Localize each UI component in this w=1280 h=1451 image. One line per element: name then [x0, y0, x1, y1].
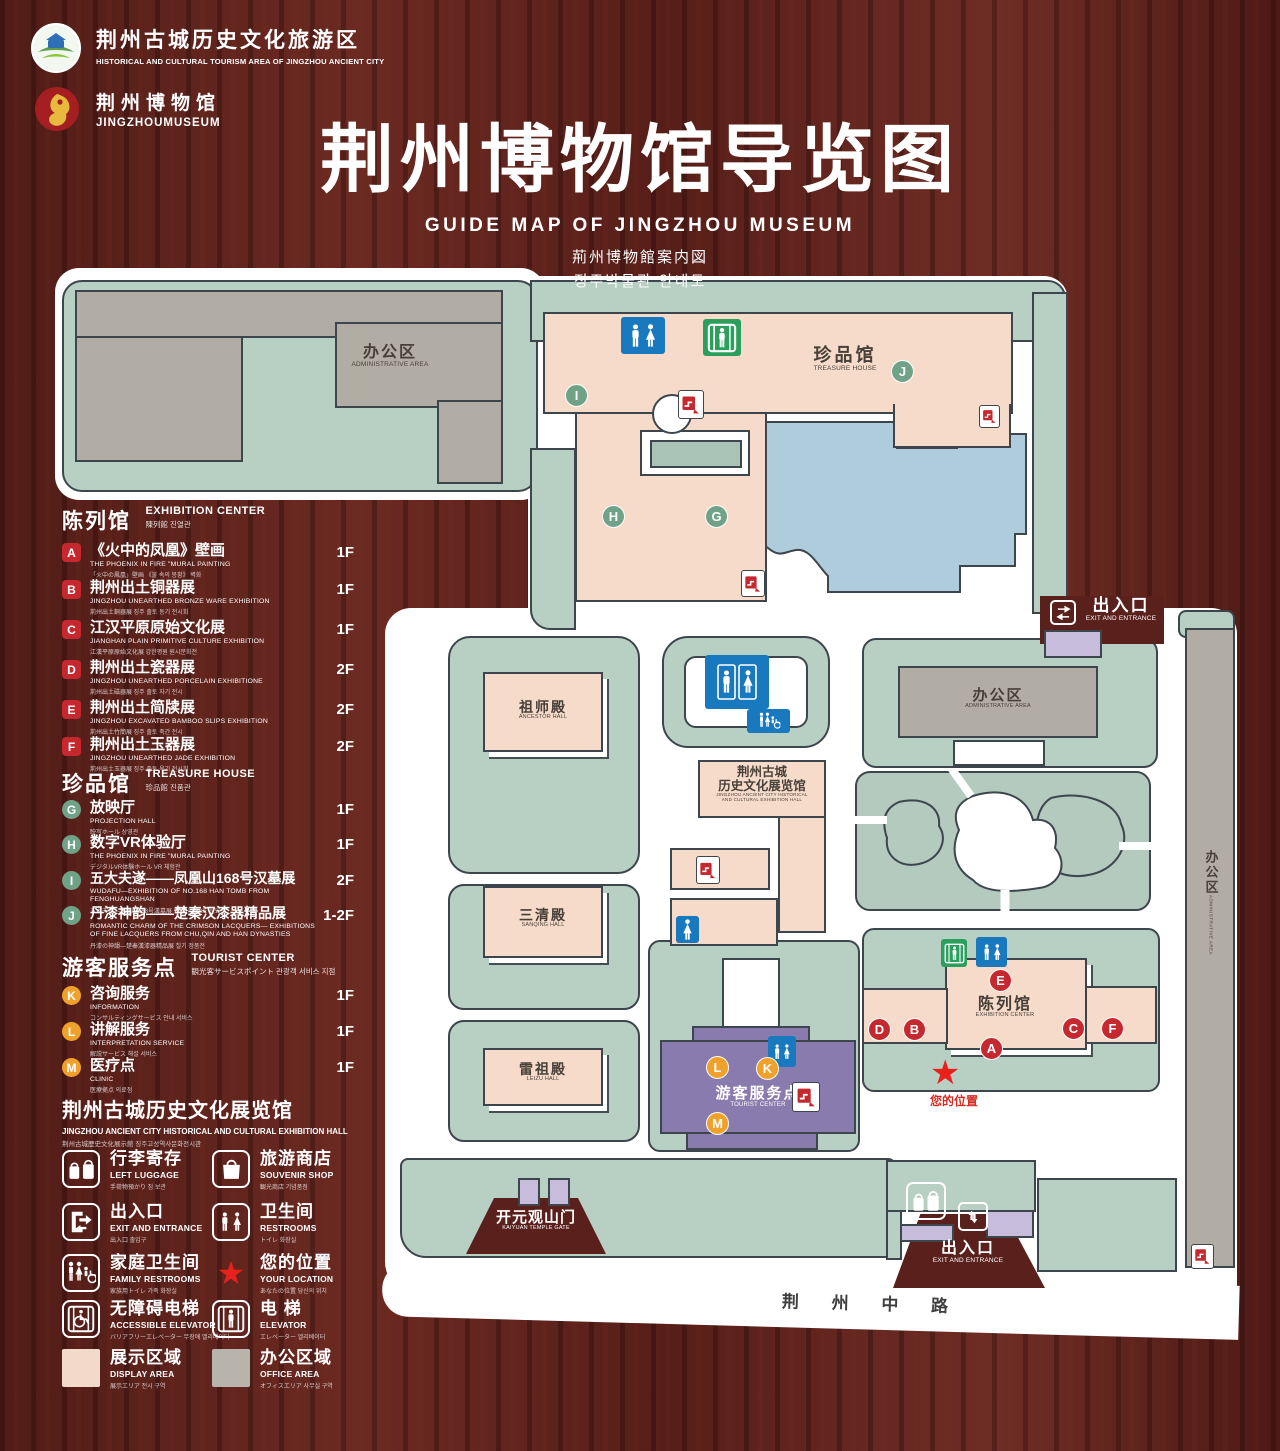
- tourism-area-logo: [30, 22, 82, 74]
- legend-item-D: D 荆州出土瓷器展 JINGZHOU UNEARTHED PORCELAIN E…: [62, 660, 354, 696]
- restroom-icon: [980, 941, 1004, 964]
- restrooms-icon: [212, 1203, 250, 1241]
- item-floor: 1F: [336, 544, 354, 561]
- sanqing-label-en: SANQING HALL: [483, 923, 603, 929]
- exit-icon-topright: [1050, 600, 1076, 625]
- icon-sub: トイレ 화장실: [260, 1235, 317, 1244]
- woman-restroom-icon: [681, 919, 694, 941]
- marker-B: B: [903, 1018, 926, 1041]
- legend-souvenir-shop: 旅游商店 SOUVENIR SHOP 観光商店 기념품점: [212, 1150, 333, 1191]
- icon-sub: 手荷物預かり 짐 보관: [110, 1182, 182, 1191]
- item-zh: 荆州出土瓷器展: [90, 660, 320, 676]
- item-zh: 数字VR体验厅: [90, 835, 320, 851]
- elevator-sign-treasure: [703, 319, 741, 356]
- legend-section-exhibition-title: 陈列馆 EXHIBITION CENTER 陳列館 진열관: [62, 505, 265, 535]
- marker-E: E: [989, 969, 1012, 992]
- badge-A: A: [62, 543, 81, 562]
- your-location-star-icon: ★: [212, 1254, 250, 1292]
- item-sub: 荊州出土銅器展 징주 출토 동기 전시회: [90, 607, 320, 616]
- admin-topleft-label: 办公区 ADMINISTRATIVE AREA: [330, 344, 450, 368]
- legend-elevator: 电 梯 ELEVATOR エレベーター 엘리베이터: [212, 1300, 325, 1341]
- south-grounds-east: [1037, 1178, 1177, 1272]
- elevator-icon: [707, 323, 737, 353]
- family-restroom-sign-central: [747, 709, 790, 733]
- admin-mid-label: 办公区 ADMINISTRATIVE AREA: [938, 688, 1058, 710]
- icon-sub: 展示エリア 전시 구역: [110, 1381, 182, 1390]
- treasure-grounds-right: [1032, 292, 1068, 614]
- legend-hall-note: 荆州古城历史文化展览馆 JINGZHOU ANCIENT CITY HISTOR…: [62, 1094, 372, 1148]
- item-zh: 咨询服务: [90, 986, 320, 1002]
- treasure-label-en: TREASURE HOUSE: [785, 365, 905, 372]
- item-floor: 1F: [336, 801, 354, 818]
- marker-I: I: [565, 384, 588, 407]
- hall-note-zh: 荆州古城历史文化展览馆: [62, 1094, 372, 1123]
- section-title-zh: 游客服务点: [62, 952, 177, 982]
- updown-arrows-glyph: [963, 1207, 983, 1227]
- elevator-sign-exhibition: [941, 939, 967, 967]
- restroom-sign-exhibhall: [676, 916, 699, 943]
- item-floor: 1F: [336, 1023, 354, 1040]
- exhibition-label-zh: 陈列馆: [950, 996, 1060, 1013]
- escalator-glyph: [982, 408, 997, 425]
- your-location-star-icon: ★: [930, 1056, 960, 1090]
- treasure-grounds-left: [530, 448, 576, 630]
- gate-block-south-2: [986, 1210, 1034, 1238]
- treasure-courtyard-garden: [650, 440, 742, 468]
- south-exit-arrows-icon: [958, 1202, 988, 1231]
- legend-section-treasure-title: 珍品馆 TREASURE HOUSE 珍品館 진품관: [62, 768, 255, 798]
- icon-zh: 出入口: [110, 1203, 202, 1220]
- office-area-swatch: [212, 1349, 250, 1387]
- title-zh: 荆州博物馆导览图: [240, 100, 1040, 207]
- badge-F: F: [62, 737, 81, 756]
- legend-item-L: L 讲解服务 INTERPRETATION SERVICE 解説サービス 해설 …: [62, 1022, 354, 1058]
- icon-zh: 电 梯: [260, 1300, 325, 1317]
- leizu-hall-label: 雷祖殿 LEIZU HALL: [483, 1062, 603, 1083]
- icon-en: ELEVATOR: [260, 1320, 325, 1330]
- badge-J: J: [62, 906, 81, 925]
- item-floor: 2F: [336, 872, 354, 889]
- admin-topleft-label-zh: 办公区: [330, 344, 450, 361]
- legend-item-A: A 《火中的凤凰》壁画 THE PHOENIX IN FIRE "MURAL P…: [62, 543, 354, 579]
- exit-arrows-glyph: [1054, 605, 1073, 620]
- badge-M: M: [62, 1058, 81, 1077]
- icon-en: YOUR LOCATION: [260, 1274, 333, 1284]
- icon-en: EXIT AND ENTRANCE: [110, 1223, 202, 1233]
- item-floor: 1F: [336, 987, 354, 1004]
- marker-H: H: [602, 505, 625, 528]
- badge-D: D: [62, 660, 81, 679]
- badge-K: K: [62, 986, 81, 1005]
- admin-strip-label-en: ADMINISTRATIVE AREA: [1209, 895, 1214, 955]
- escalator-icon-treasure-2: [741, 570, 765, 597]
- item-en: PROJECTION HALL: [90, 818, 320, 826]
- escalator-icon-treasure-1: [678, 390, 704, 419]
- legend-item-G: G 放映厅 PROJECTION HALL 映写ホール 상영관 1F: [62, 800, 354, 836]
- section-title-sub: 珍品館 진품관: [145, 782, 255, 793]
- icon-en: DISPLAY AREA: [110, 1369, 182, 1379]
- item-en: JINGZHOU UNEARTHED BRONZE WARE EXHIBITIO…: [90, 598, 320, 606]
- badge-L: L: [62, 1022, 81, 1041]
- badge-B: B: [62, 580, 81, 599]
- legend-office-area: 办公区域 OFFICE AREA オフィスエリア 사무실 구역: [212, 1349, 333, 1390]
- item-zh: 荆州出土玉器展: [90, 737, 320, 753]
- legend-item-E: E 荆州出土简牍展 JINGZHOU EXCAVATED BAMBOO SLIP…: [62, 700, 354, 736]
- icon-zh: 家庭卫生间: [110, 1254, 201, 1271]
- elevator-icon: [212, 1300, 250, 1338]
- item-zh: 放映厅: [90, 800, 320, 816]
- item-sub: 荊州出土磁器展 징주 출토 자기 전시: [90, 687, 320, 696]
- badge-E: E: [62, 700, 81, 719]
- museum-name-en: JINGZHOUMUSEUM: [96, 117, 221, 129]
- section-title-zh: 陈列馆: [62, 505, 131, 535]
- south-exit-label: 出入口 EXIT AND ENTRANCE: [900, 1240, 1036, 1264]
- museum-name-zh: 荆州博物馆: [96, 88, 221, 115]
- item-floor: 2F: [336, 661, 354, 678]
- garden: [855, 768, 1153, 914]
- item-en: JINGZHOU EXCAVATED BAMBOO SLIPS EXHIBITI…: [90, 718, 320, 726]
- item-zh: 讲解服务: [90, 1022, 320, 1038]
- item-en: THE PHOENIX IN FIRE "MURAL PAINTING: [90, 853, 320, 861]
- luggage-glyph: [68, 1158, 95, 1181]
- sanqing-hall-label: 三清殿 SANQING HALL: [483, 908, 603, 929]
- marker-A: A: [980, 1037, 1003, 1060]
- item-en: CLINIC: [90, 1076, 320, 1084]
- family-restroom-icon: [752, 712, 786, 730]
- leizu-label-en: LEIZU HALL: [483, 1077, 603, 1083]
- exhibition-label-en: EXHIBITION CENTER: [950, 1013, 1060, 1019]
- escalator-glyph: [796, 1086, 817, 1109]
- badge-H: H: [62, 835, 81, 854]
- legend-item-M: M 医疗点 CLINIC 医療拠点 의료점 1F: [62, 1058, 354, 1094]
- icon-en: RESTROOMS: [260, 1223, 317, 1233]
- marker-L: L: [706, 1056, 729, 1079]
- exhibhall-building-wing: [778, 818, 826, 933]
- restroom-icon: [714, 662, 760, 702]
- exit-entrance-icon: [62, 1203, 100, 1241]
- legend-item-K: K 咨询服务 INFORMATION コンサルティングサービス 안내 서비스 1…: [62, 986, 354, 1022]
- gate-label-zh: 开元观山门: [466, 1210, 606, 1226]
- south-exit-zh: 出入口: [900, 1240, 1036, 1257]
- legend-display-area: 展示区域 DISPLAY AREA 展示エリア 전시 구역: [62, 1349, 182, 1390]
- section-title-en: TREASURE HOUSE: [145, 768, 255, 780]
- marker-K: K: [756, 1057, 779, 1080]
- admin-mid-label-zh: 办公区: [938, 688, 1058, 704]
- item-floor: 2F: [336, 701, 354, 718]
- display-area-swatch: [62, 1349, 100, 1387]
- legend-family-restrooms: 家庭卫生间 FAMILY RESTROOMS 家族用トイレ 가족 화장실: [62, 1254, 201, 1295]
- gate-block-west-1: [518, 1178, 540, 1206]
- item-en: ROMANTIC CHARM OF THE CRIMSON LACQUERS— …: [90, 923, 320, 940]
- escalator-icon-tourist: [792, 1082, 820, 1112]
- admin-topleft-label-en: ADMINISTRATIVE AREA: [330, 361, 450, 368]
- restroom-sign-central: [705, 655, 769, 709]
- restroom-sign-exhibition: [976, 937, 1007, 967]
- tourism-area-name-zh: 荆州古城历史文化旅游区: [96, 24, 384, 54]
- accessible-elevator-glyph: [67, 1305, 95, 1333]
- escalator-icon-strip: [1191, 1244, 1214, 1269]
- marker-D: D: [868, 1018, 891, 1041]
- restroom-icon: [626, 321, 660, 351]
- gate-label-en: KAIYUAN TEMPLE GATE: [466, 1226, 606, 1232]
- ancestor-hall-label: 祖师殿 ANCESTOR HALL: [483, 700, 603, 721]
- item-zh: 五大夫遂——凤凰山168号汉墓展: [90, 871, 320, 886]
- admin-mid-label-en: ADMINISTRATIVE AREA: [938, 704, 1058, 710]
- exit-topright-zh: 出入口: [1078, 597, 1164, 615]
- exit-topright-en: EXIT AND ENTRANCE: [1078, 615, 1164, 622]
- ancestor-label-zh: 祖师殿: [483, 700, 603, 715]
- exhibhall-label-zh2: 历史文化展览馆: [690, 780, 834, 794]
- icon-sub: エレベーター 엘리베이터: [260, 1332, 325, 1341]
- road-name: 荆 州 中 路: [742, 1286, 1003, 1318]
- section-title-en: TOURIST CENTER: [191, 952, 335, 964]
- hall-note-en: JINGZHOU ANCIENT CITY HISTORICAL AND CUL…: [62, 1127, 372, 1136]
- legend-item-B: B 荆州出土铜器展 JINGZHOU UNEARTHED BRONZE WARE…: [62, 580, 354, 616]
- item-en: JINGZHOU UNEARTHED PORCELAIN EXHIBITIONE: [90, 678, 320, 686]
- item-en: JIANGHAN PLAIN PRIMITIVE CULTURE EXHIBIT…: [90, 638, 320, 646]
- shop-bag-glyph: [219, 1158, 244, 1181]
- escalator-glyph: [744, 574, 762, 594]
- icon-en: OFFICE AREA: [260, 1369, 333, 1379]
- item-floor: 1F: [336, 1059, 354, 1076]
- title-ja: 荊州博物館案内図: [240, 246, 1040, 267]
- tourism-area-name-en: HISTORICAL AND CULTURAL TOURISM AREA OF …: [96, 57, 384, 66]
- item-zh: 《火中的凤凰》壁画: [90, 543, 320, 559]
- item-floor: 1F: [336, 581, 354, 598]
- elevator-icon: [944, 943, 965, 964]
- item-floor: 2F: [336, 738, 354, 755]
- gate-block-west-2: [548, 1178, 570, 1206]
- tourism-area-logotext: 荆州古城历史文化旅游区 HISTORICAL AND CULTURAL TOUR…: [96, 24, 384, 66]
- item-sub: 丹漆の神韻—楚秦漢漆器精品展 칠기 정품전: [90, 941, 320, 950]
- legend-your-location: ★ 您的位置 YOUR LOCATION あなたの位置 당신의 위치: [212, 1254, 333, 1295]
- south-exit-en: EXIT AND ENTRANCE: [900, 1257, 1036, 1264]
- leizu-label-zh: 雷祖殿: [483, 1062, 603, 1077]
- exhibhall-label: 荆州古城 历史文化展览馆 JINGZHOU ANCIENT CITY HISTO…: [690, 766, 834, 803]
- item-en: THE PHOENIX IN FIRE "MURAL PAINTING: [90, 561, 320, 569]
- escalator-glyph: [699, 860, 717, 881]
- item-en: INFORMATION: [90, 1004, 320, 1012]
- legend-exit-entrance: 出入口 EXIT AND ENTRANCE 出入口 출입구: [62, 1203, 202, 1244]
- icon-zh: 卫生间: [260, 1203, 317, 1220]
- restroom-sign-treasure: [621, 317, 665, 354]
- item-sub: 医療拠点 의료점: [90, 1085, 320, 1094]
- legend-item-H: H 数字VR体验厅 THE PHOENIX IN FIRE "MURAL PAI…: [62, 835, 354, 871]
- escalator-glyph: [1194, 1247, 1211, 1266]
- poster-title: 荆州博物馆导览图 GUIDE MAP OF JINGZHOU MUSEUM 荊州…: [240, 100, 1040, 291]
- escalator-glyph: [681, 394, 701, 416]
- left-luggage-map-icon: [906, 1182, 946, 1220]
- item-en: JINGZHOU UNEARTHED JADE EXHIBITION: [90, 755, 320, 763]
- item-zh: 医疗点: [90, 1058, 320, 1074]
- treasure-label-zh: 珍品馆: [785, 346, 905, 365]
- guide-map-poster: 荆州古城历史文化旅游区 HISTORICAL AND CULTURAL TOUR…: [0, 0, 1280, 1451]
- left-luggage-icon: [62, 1150, 100, 1188]
- item-zh: 江汉平原原始文化展: [90, 620, 320, 636]
- icon-zh: 办公区域: [260, 1349, 333, 1366]
- exit-label-topright: 出入口 EXIT AND ENTRANCE: [1078, 597, 1164, 622]
- icon-zh: 旅游商店: [260, 1150, 333, 1167]
- icon-sub: 観光商店 기념품점: [260, 1182, 333, 1191]
- title-ko: 징주박물관 안내도: [240, 270, 1040, 291]
- tourist-center-court: [722, 958, 780, 1028]
- legend-left-luggage: 行李寄存 LEFT LUGGAGE 手荷物預かり 짐 보관: [62, 1150, 182, 1191]
- treasure-house-label: 珍品馆 TREASURE HOUSE: [785, 346, 905, 372]
- ancestor-label-en: ANCESTOR HALL: [483, 715, 603, 721]
- icon-zh: 您的位置: [260, 1254, 333, 1271]
- admin-strip-label-zh: 办公区: [1202, 850, 1221, 895]
- exhibhall-building-annex1: [670, 848, 770, 890]
- legend-section-tourist-title: 游客服务点 TOURIST CENTER 観光客サービスポイント 관광객 서비스…: [62, 952, 335, 982]
- item-sub: 「火中の鳳凰」壁画 《불 속의 봉황》 벽화: [90, 570, 320, 579]
- section-title-en: EXHIBITION CENTER: [145, 505, 265, 517]
- family-restrooms-icon: [62, 1254, 100, 1292]
- icon-zh: 行李寄存: [110, 1150, 182, 1167]
- escalator-icon-exhibhall: [696, 856, 720, 884]
- item-floor: 1-2F: [323, 907, 354, 924]
- museum-logo: [34, 86, 80, 132]
- section-title-zh: 珍品馆: [62, 768, 131, 798]
- icon-en: SOUVENIR SHOP: [260, 1170, 333, 1180]
- icon-sub: 家族用トイレ 가족 화장실: [110, 1286, 201, 1295]
- escalator-icon-treasure-3: [979, 405, 1000, 428]
- restroom-glyph: [217, 1209, 245, 1235]
- section-title-sub: 観光客サービスポイント 관광객 서비스 지점: [191, 966, 335, 977]
- icon-sub: あなたの位置 당신의 위치: [260, 1286, 333, 1295]
- legend-item-J: J 丹漆神韵——楚秦汉漆器精品展 ROMANTIC CHARM OF THE C…: [62, 906, 354, 950]
- elevator-glyph: [217, 1305, 245, 1333]
- icon-sub: オフィスエリア 사무실 구역: [260, 1381, 333, 1390]
- marker-M: M: [706, 1112, 729, 1135]
- badge-I: I: [62, 871, 81, 890]
- title-en: GUIDE MAP OF JINGZHOU MUSEUM: [240, 215, 1040, 237]
- luggage-glyph: [912, 1189, 940, 1213]
- legend-accessible-elevator: 无障碍电梯 ACCESSIBLE ELEVATOR バリアフリーエレベーター 무…: [62, 1300, 230, 1341]
- icon-en: FAMILY RESTROOMS: [110, 1274, 201, 1284]
- kaiyuan-gate-label: 开元观山门 KAIYUAN TEMPLE GATE: [466, 1210, 606, 1232]
- souvenir-shop-icon: [212, 1150, 250, 1188]
- item-zh: 荆州出土简牍展: [90, 700, 320, 716]
- item-zh: 丹漆神韵——楚秦汉漆器精品展: [90, 906, 320, 921]
- gate-block-topright: [1044, 630, 1102, 658]
- badge-G: G: [62, 800, 81, 819]
- admin-strip-label: 办公区 ADMINISTRATIVE AREA: [1191, 850, 1231, 1010]
- marker-C: C: [1062, 1017, 1085, 1040]
- exhibition-center-label: 陈列馆 EXHIBITION CENTER: [950, 996, 1060, 1019]
- accessible-elevator-icon: [62, 1300, 100, 1338]
- legend-restrooms: 卫生间 RESTROOMS トイレ 화장실: [212, 1203, 317, 1244]
- legend-item-C: C 江汉平原原始文化展 JIANGHAN PLAIN PRIMITIVE CUL…: [62, 620, 354, 656]
- item-sub: 江漢平原原始文化展 강한평원 원시문화전: [90, 647, 320, 656]
- marker-G: G: [705, 505, 728, 528]
- museum-logotext: 荆州博物馆 JINGZHOUMUSEUM: [96, 88, 221, 129]
- section-title-sub: 陳列館 진열관: [145, 519, 265, 530]
- admin-topleft-building-leg: [437, 400, 503, 484]
- item-sub: 荊州出土竹簡展 징주 출토 죽간 전시: [90, 727, 320, 736]
- item-en: INTERPRETATION SERVICE: [90, 1040, 320, 1048]
- marker-F: F: [1101, 1017, 1124, 1040]
- badge-C: C: [62, 620, 81, 639]
- family-glyph: [66, 1261, 96, 1285]
- item-zh: 荆州出土铜器展: [90, 580, 320, 596]
- marker-J: J: [891, 360, 914, 383]
- admin-mid-courtyard: [953, 740, 1045, 766]
- item-floor: 1F: [336, 621, 354, 638]
- exhibhall-label-en2: AND CULTURAL EXHIBITION HALL: [690, 798, 834, 803]
- tourist-center-building-south: [686, 1134, 818, 1150]
- your-location-label: 您的位置: [916, 1092, 992, 1109]
- hall-note-sub: 荆州古城歴史文化展示館 징주고성역사문화전시관: [62, 1138, 372, 1148]
- exhibhall-label-zh1: 荆州古城: [690, 766, 834, 780]
- icon-sub: 出入口 출입구: [110, 1235, 202, 1244]
- icon-zh: 展示区域: [110, 1349, 182, 1366]
- item-en: WUDAFU—EXHIBITION OF NO.168 HAN TOMB FRO…: [90, 888, 320, 905]
- icon-en: LEFT LUGGAGE: [110, 1170, 182, 1180]
- treasure-house-building-top: [543, 312, 1013, 414]
- exit-glyph: [68, 1209, 94, 1235]
- item-floor: 1F: [336, 836, 354, 853]
- sanqing-label-zh: 三清殿: [483, 908, 603, 923]
